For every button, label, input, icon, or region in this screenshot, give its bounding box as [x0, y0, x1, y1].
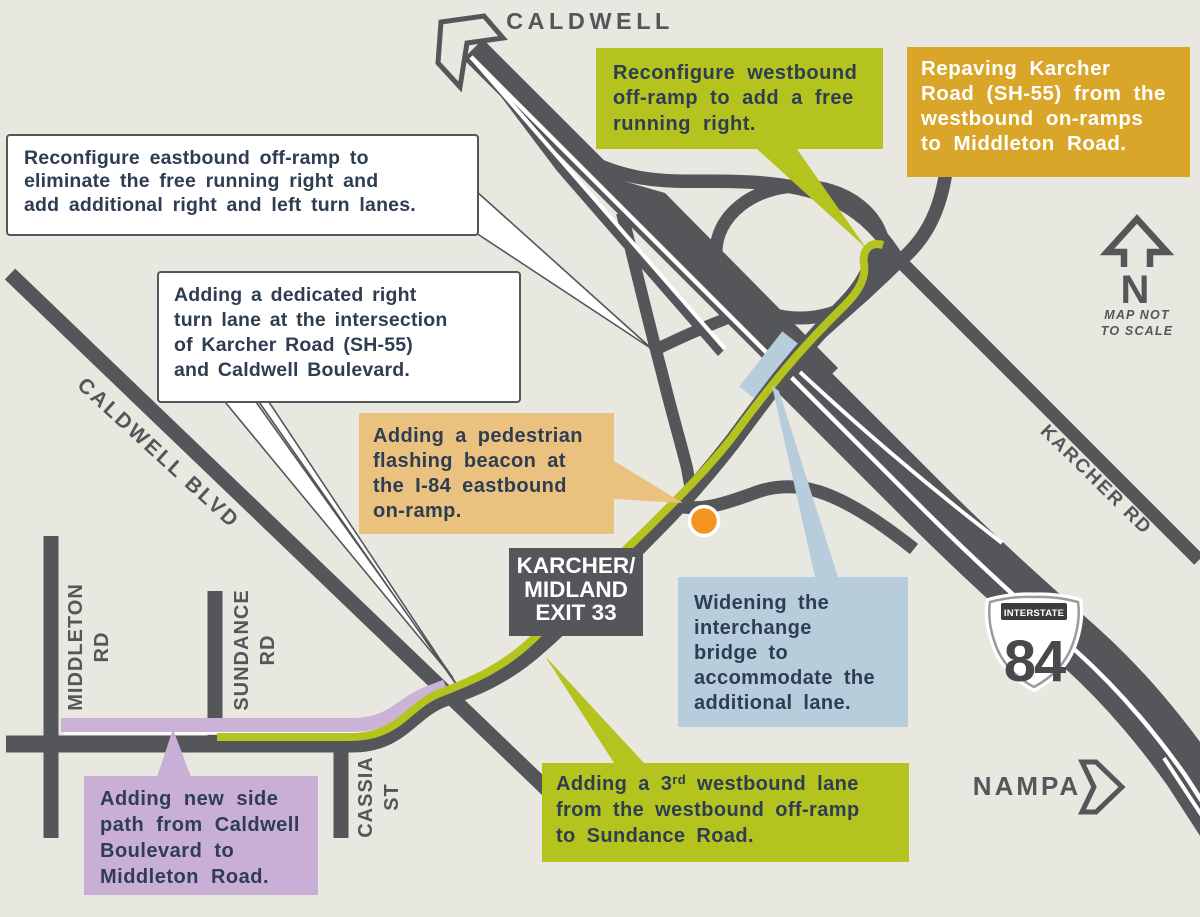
svg-text:N: N	[1121, 268, 1150, 312]
svg-text:off-ramp to add a free: off-ramp to add a free	[613, 87, 854, 109]
svg-text:INTERSTATE: INTERSTATE	[1004, 608, 1064, 619]
svg-text:Road (SH-55) from the: Road (SH-55) from the	[921, 82, 1166, 105]
svg-text:on-ramp.: on-ramp.	[373, 500, 462, 522]
svg-text:from the westbound off-ramp: from the westbound off-ramp	[556, 799, 860, 821]
svg-text:westbound on-ramps: westbound on-ramps	[920, 107, 1143, 130]
svg-text:RD: RD	[257, 635, 279, 666]
svg-text:ST: ST	[381, 783, 403, 811]
svg-text:MAP NOT: MAP NOT	[1104, 308, 1170, 322]
svg-text:turn lane at the intersection: turn lane at the intersection	[174, 309, 448, 331]
svg-text:CASSIA: CASSIA	[355, 756, 377, 838]
svg-text:Adding a dedicated right: Adding a dedicated right	[174, 284, 417, 306]
svg-text:Repaving Karcher: Repaving Karcher	[921, 57, 1110, 80]
svg-text:Adding a pedestrian: Adding a pedestrian	[373, 425, 583, 447]
svg-text:EXIT 33: EXIT 33	[535, 600, 616, 625]
svg-text:TO SCALE: TO SCALE	[1101, 324, 1174, 338]
svg-text:to Sundance Road.: to Sundance Road.	[556, 825, 754, 847]
svg-text:and Caldwell Boulevard.: and Caldwell Boulevard.	[174, 359, 410, 381]
svg-text:to Middleton Road.: to Middleton Road.	[921, 132, 1126, 155]
svg-text:of Karcher Road (SH-55): of Karcher Road (SH-55)	[174, 334, 413, 356]
svg-text:NAMPA: NAMPA	[973, 771, 1081, 801]
svg-text:Adding a 3rd westbound lane: Adding a 3rd westbound lane	[556, 772, 859, 795]
svg-text:eliminate the free running rig: eliminate the free running right and	[24, 170, 378, 192]
svg-text:RD: RD	[91, 632, 113, 663]
svg-text:MIDLAND: MIDLAND	[524, 577, 628, 602]
svg-text:CALDWELL: CALDWELL	[506, 8, 674, 34]
svg-text:SUNDANCE: SUNDANCE	[231, 589, 253, 710]
svg-text:add additional right and left: add additional right and left turn lanes…	[24, 194, 416, 216]
svg-text:interchange: interchange	[694, 617, 812, 639]
svg-text:flashing beacon at: flashing beacon at	[373, 450, 566, 472]
svg-text:Boulevard to: Boulevard to	[100, 840, 234, 862]
svg-text:Middleton Road.: Middleton Road.	[100, 866, 269, 888]
svg-text:Reconfigure westbound: Reconfigure westbound	[613, 62, 857, 84]
svg-text:MIDDLETON: MIDDLETON	[65, 583, 87, 711]
svg-text:bridge to: bridge to	[694, 642, 788, 664]
svg-text:KARCHER/: KARCHER/	[517, 553, 637, 578]
svg-text:Widening the: Widening the	[694, 592, 829, 614]
svg-text:Adding new side: Adding new side	[100, 788, 278, 810]
svg-text:running right.: running right.	[613, 113, 756, 135]
svg-text:path from Caldwell: path from Caldwell	[100, 814, 300, 836]
svg-text:the I-84 eastbound: the I-84 eastbound	[373, 475, 567, 497]
svg-text:accommodate the: accommodate the	[694, 667, 875, 689]
svg-text:84: 84	[1004, 629, 1066, 694]
svg-text:Reconfigure eastbound off-ramp: Reconfigure eastbound off-ramp to	[24, 147, 369, 169]
svg-text:additional lane.: additional lane.	[694, 692, 851, 714]
